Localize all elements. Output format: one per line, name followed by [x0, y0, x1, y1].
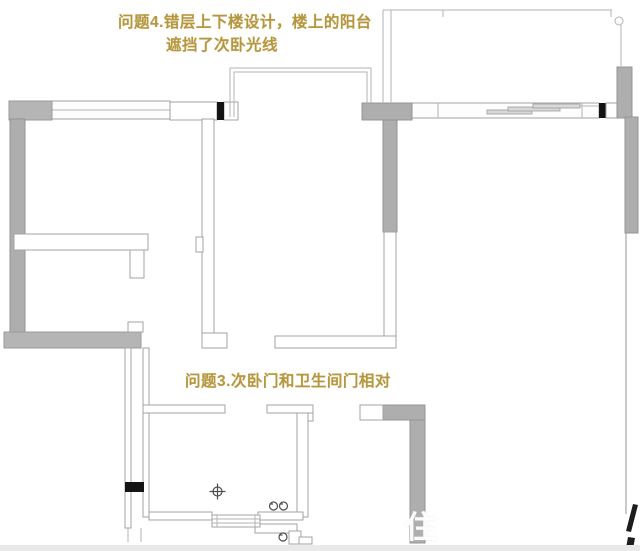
wall-segment	[125, 348, 131, 528]
wall-black-segment	[217, 102, 224, 120]
wall-black-segment	[599, 103, 606, 118]
wall-segment	[384, 232, 396, 348]
gray-walls	[4, 67, 638, 543]
watermark-character: 住	[405, 512, 436, 543]
floor-plan-image: 问题4.错层上下楼设计，楼上的阳台 遮挡了次卧光线 问题3.次卧门和卫生间门相对…	[0, 0, 640, 551]
upper-floor-lines	[383, 10, 623, 102]
wall-segment	[299, 537, 312, 544]
wall-segment	[149, 512, 212, 520]
image-bottom-strip	[0, 545, 640, 551]
wall-segment	[617, 67, 632, 118]
floor-plan-drawing	[0, 0, 640, 551]
closet-outline	[14, 234, 148, 332]
floor-drain-icon	[210, 484, 226, 500]
interior-walls	[196, 119, 396, 348]
wall-segment	[275, 336, 396, 348]
upstairs-balcony-outline	[230, 68, 371, 117]
wall-segment	[606, 103, 617, 118]
annotation-problem3: 问题3.次卧门和卫生间门相对	[185, 369, 391, 391]
wall-top-middle	[170, 102, 238, 120]
wall-segment	[143, 405, 225, 413]
wall-segment	[258, 512, 303, 520]
wall-segment	[297, 413, 308, 517]
faucet-icon	[270, 502, 278, 510]
faucet-icon	[280, 502, 288, 510]
bathroom-door	[212, 515, 260, 527]
wall-black-segment	[125, 482, 144, 492]
sliding-panel	[533, 104, 580, 108]
closet-return	[130, 250, 144, 278]
faucet-icon	[279, 533, 287, 541]
wall-segment	[4, 332, 141, 348]
closet-band	[14, 234, 148, 250]
window-top-right	[412, 103, 617, 118]
corner-circle-icon	[615, 17, 623, 25]
wall-segment	[170, 102, 217, 120]
wall-notch	[128, 322, 143, 332]
wall-segment	[362, 103, 412, 120]
wall-segment	[383, 120, 397, 232]
wall-segment	[383, 405, 425, 420]
wall-segment	[202, 119, 214, 334]
watermark-character-faint: 好	[376, 517, 402, 543]
wall-segment	[224, 102, 238, 120]
wall-segment	[625, 117, 638, 233]
wall-segment	[360, 405, 383, 420]
annotation-problem4-line2: 遮挡了次卧光线	[166, 33, 278, 55]
wall-segment	[202, 333, 227, 348]
watermark-fragment	[626, 504, 638, 549]
wall-segment	[9, 101, 52, 120]
window-top-left	[52, 101, 170, 119]
annotation-problem4-line1: 问题4.错层上下楼设计，楼上的阳台	[118, 10, 372, 32]
door-jamb	[196, 237, 203, 252]
wall-segment	[267, 405, 313, 413]
